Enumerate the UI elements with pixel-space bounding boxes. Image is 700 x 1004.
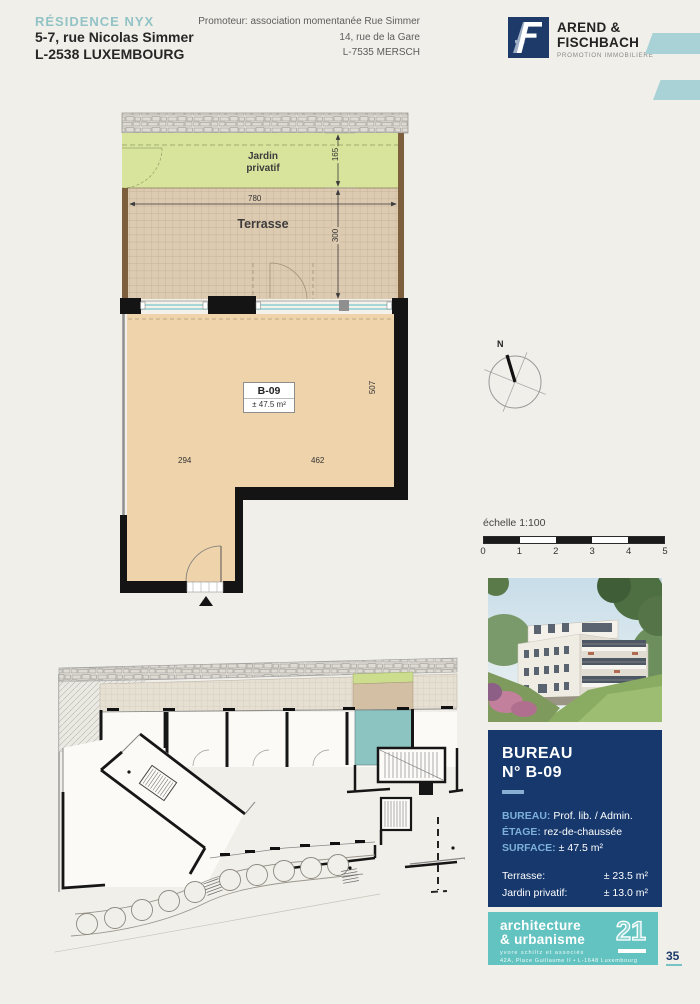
decorative-stripe-icon bbox=[653, 80, 700, 100]
compass-north-label: N bbox=[497, 339, 504, 349]
info-extra-rows: Terrasse:± 23.5 m² Jardin privatif:± 13.… bbox=[502, 868, 648, 902]
scale-segments bbox=[483, 536, 665, 544]
unit-info-panel: BUREAU N° B-09 BUREAU:Prof. lib. / Admin… bbox=[488, 730, 662, 907]
decorative-stripe-icon bbox=[645, 33, 700, 54]
promoter-block: Promoteur: association momentanée Rue Si… bbox=[180, 14, 420, 61]
site-plan bbox=[45, 652, 465, 1002]
dim-jardin-depth: 165 bbox=[331, 146, 340, 163]
scale-bar: échelle 1:100 0 1 2 3 4 5 bbox=[483, 517, 665, 559]
info-row-floor: ÉTAGE:rez-de-chaussée bbox=[502, 824, 648, 840]
stone-wall bbox=[122, 113, 408, 133]
promoter-line1: Promoteur: association momentanée Rue Si… bbox=[180, 14, 420, 30]
building-photo bbox=[488, 578, 662, 722]
logo-tagline: PROMOTION IMMOBILIERE bbox=[557, 52, 654, 59]
jardin-label: Jardin privatif bbox=[228, 151, 298, 175]
info-row-terrasse: Terrasse:± 23.5 m² bbox=[502, 868, 648, 885]
page-number: 35 bbox=[666, 949, 679, 963]
logo-name-line2: FISCHBACH bbox=[557, 35, 639, 50]
architecture-logo-address: 42A, Place Guillaume II • L-1648 Luxembo… bbox=[500, 958, 646, 964]
scale-ticks: 0 1 2 3 4 5 bbox=[483, 546, 665, 559]
info-title-line1: BUREAU bbox=[502, 744, 648, 763]
terrasse-label: Terrasse bbox=[223, 218, 303, 230]
info-row-surface: SURFACE:± 47.5 m² bbox=[502, 840, 648, 856]
unit-label-box: B-09 ± 47.5 m² bbox=[243, 382, 295, 413]
dim-room-width-left: 294 bbox=[176, 456, 193, 465]
unit-area: ± 47.5 m² bbox=[244, 400, 294, 409]
main-floor-plan bbox=[115, 105, 415, 610]
entrance-arrow-icon bbox=[199, 596, 213, 606]
room-b09-floor bbox=[127, 314, 394, 586]
architecture-logo-box: architecture & urbanisme 21 yvore schilt… bbox=[488, 912, 658, 965]
info-rows: BUREAU:Prof. lib. / Admin. ÉTAGE:rez-de-… bbox=[502, 808, 648, 856]
dim-terrasse-width: 780 bbox=[246, 194, 263, 203]
brochure-page: RÉSIDENCE NYX 5-7, rue Nicolas Simmer L-… bbox=[0, 0, 700, 1004]
promoter-line3: L-7535 MERSCH bbox=[180, 45, 420, 61]
promoter-line2: 14, rue de la Gare bbox=[180, 30, 420, 46]
dim-room-height: 507 bbox=[368, 379, 377, 396]
logo-name-line1: AREND & bbox=[557, 20, 639, 35]
unit-code: B-09 bbox=[244, 385, 294, 399]
dim-room-width-right: 462 bbox=[309, 456, 326, 465]
compass-icon bbox=[480, 336, 550, 416]
title-underline bbox=[502, 790, 524, 794]
logo-company-name: AREND & FISCHBACH bbox=[557, 20, 639, 50]
scale-title: échelle 1:100 bbox=[483, 517, 665, 529]
info-row-type: BUREAU:Prof. lib. / Admin. bbox=[502, 808, 648, 824]
north-needle bbox=[507, 355, 515, 382]
arend-fischbach-logo-icon bbox=[508, 17, 549, 58]
dim-terrasse-depth: 300 bbox=[331, 227, 340, 244]
residence-address-line1: 5-7, rue Nicolas Simmer bbox=[35, 29, 194, 45]
residence-name: RÉSIDENCE NYX bbox=[35, 14, 154, 29]
page-number-underline bbox=[666, 964, 682, 966]
logo-white-bar bbox=[618, 949, 646, 953]
architecture-logo-name: architecture & urbanisme bbox=[500, 919, 585, 947]
site-terrasse-highlight bbox=[353, 682, 413, 710]
residence-address-line2: L-2538 LUXEMBOURG bbox=[35, 46, 184, 62]
architecture-logo-number: 21 bbox=[616, 919, 646, 943]
info-row-jardin: Jardin privatif:± 13.0 m² bbox=[502, 885, 648, 902]
info-title-line2: N° B-09 bbox=[502, 763, 648, 782]
